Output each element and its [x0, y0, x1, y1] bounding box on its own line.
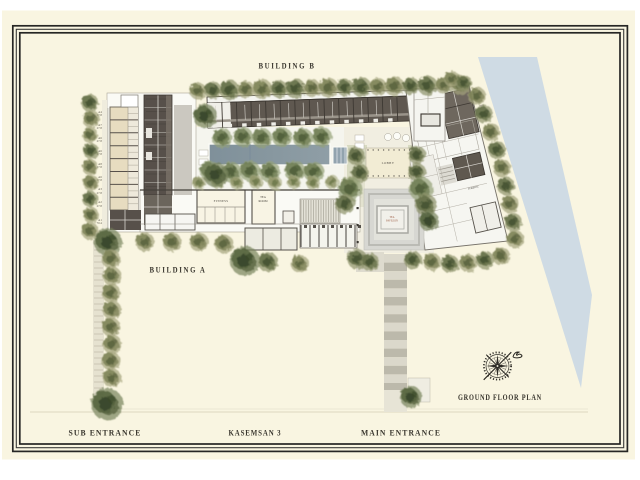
svg-text:MAIN ENTRANCE: MAIN ENTRANCE — [361, 428, 441, 438]
svg-text:KASEMSAN 3: KASEMSAN 3 — [229, 429, 282, 438]
svg-text:LOBBY: LOBBY — [382, 161, 395, 165]
svg-text:BUILDING B: BUILDING B — [259, 61, 316, 71]
svg-text:ROOM: ROOM — [258, 199, 267, 203]
svg-text:FITNESS: FITNESS — [214, 199, 229, 203]
svg-text:BUILDING A: BUILDING A — [150, 265, 207, 275]
svg-text:GROUND FLOOR PLAN: GROUND FLOOR PLAN — [458, 393, 542, 402]
svg-text:PAVILION: PAVILION — [386, 220, 398, 223]
svg-text:SUB ENTRANCE: SUB ENTRANCE — [69, 428, 142, 438]
